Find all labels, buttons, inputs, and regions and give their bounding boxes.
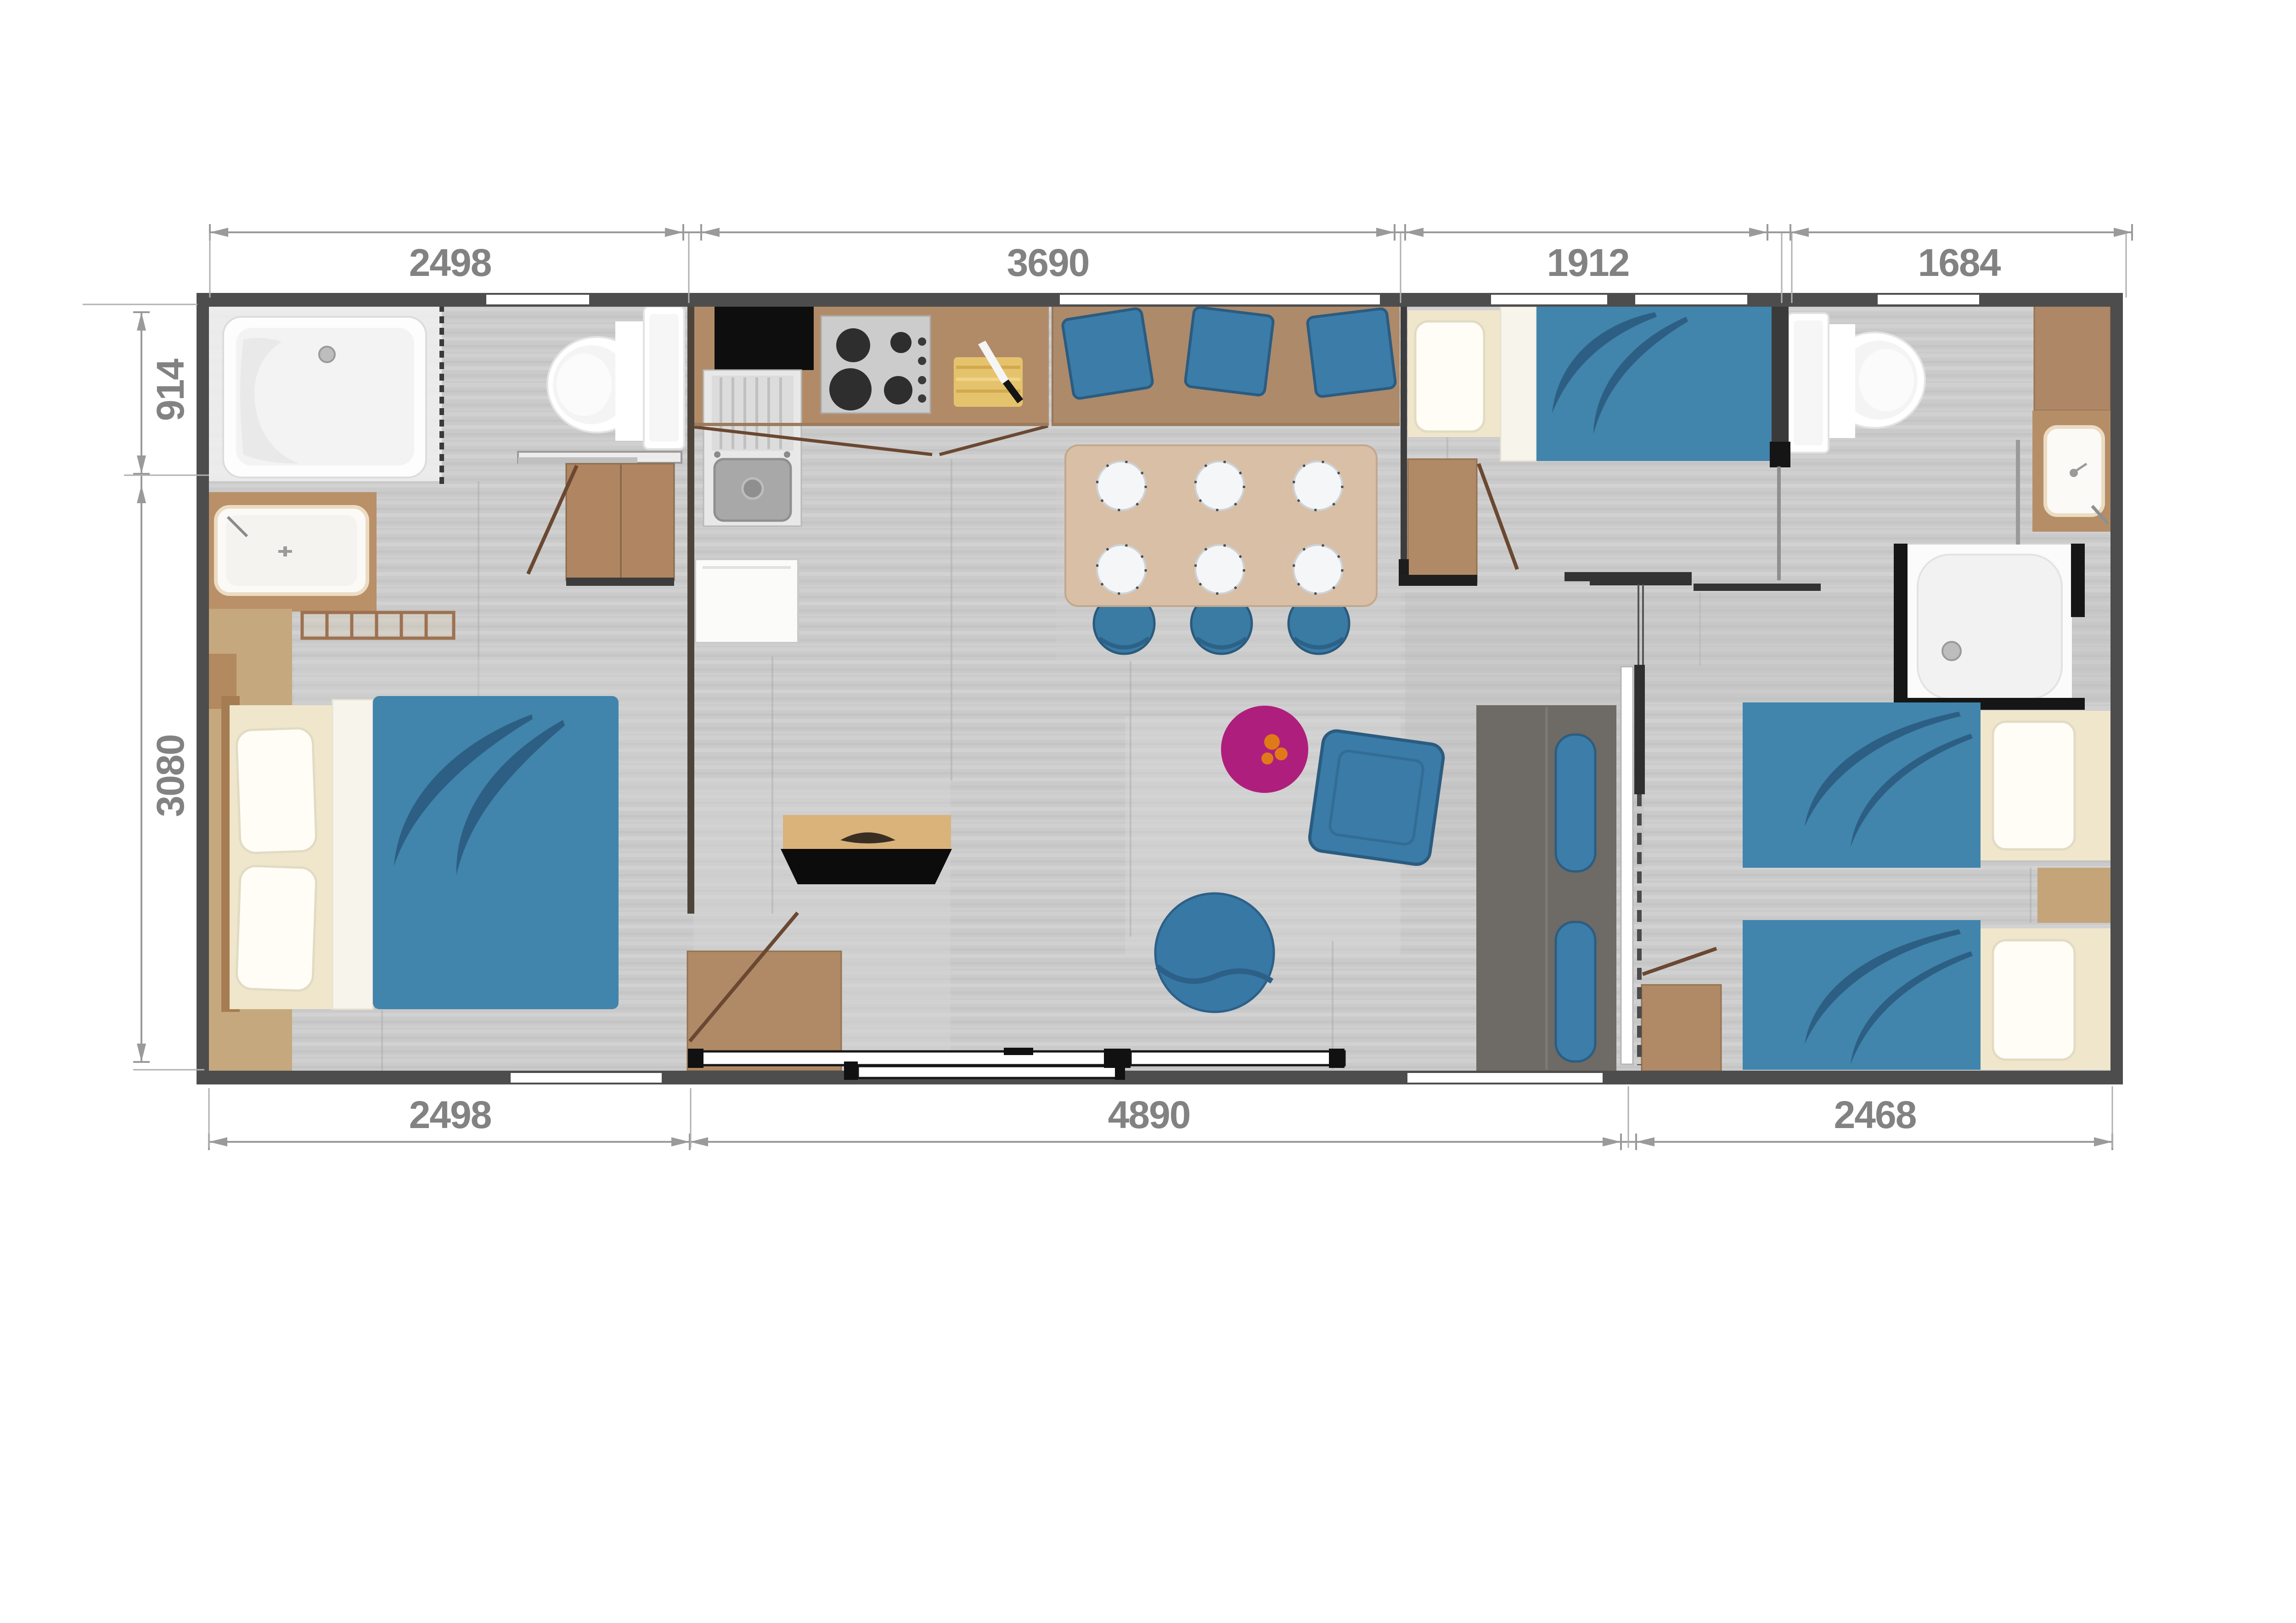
svg-text:3080: 3080 <box>149 735 192 817</box>
svg-text:3690: 3690 <box>1007 241 1089 284</box>
svg-text:4890: 4890 <box>1108 1093 1190 1136</box>
svg-text:1912: 1912 <box>1547 241 1629 284</box>
svg-text:914: 914 <box>149 359 192 421</box>
svg-text:2498: 2498 <box>409 1093 491 1136</box>
svg-text:2498: 2498 <box>409 241 491 284</box>
svg-text:1684: 1684 <box>1918 241 2001 284</box>
svg-text:2468: 2468 <box>1834 1093 1916 1136</box>
